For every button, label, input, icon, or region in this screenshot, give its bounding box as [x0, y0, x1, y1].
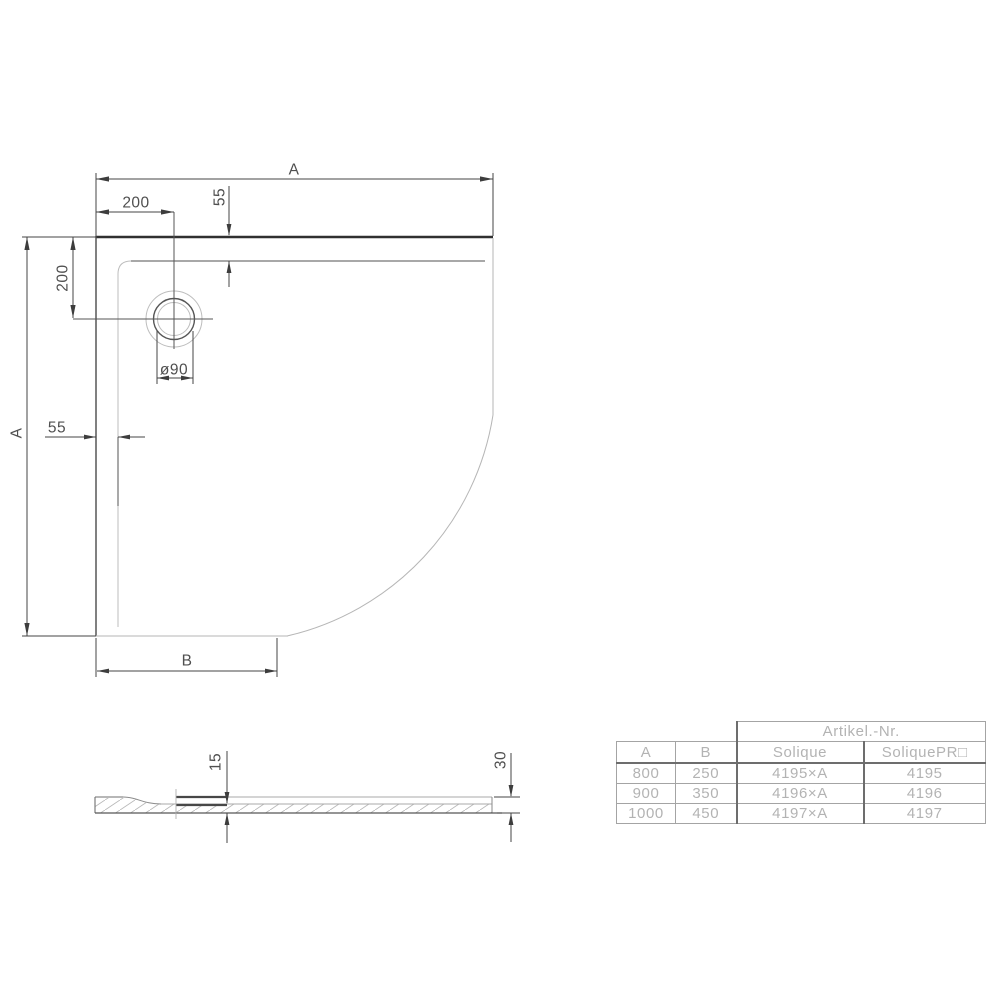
arrowhead — [118, 435, 130, 440]
section-view — [95, 789, 502, 819]
table-cell: 350 — [676, 784, 737, 804]
dim-label-200-left: 200 — [55, 264, 72, 291]
article-table-container: Artikel.-Nr. A B Solique SoliquePR□ 800 … — [616, 721, 986, 824]
dim-label-30: 30 — [493, 751, 510, 769]
arrowhead — [96, 176, 109, 181]
table-col-header-b: B — [676, 742, 737, 764]
table-cell: 1000 — [617, 804, 676, 824]
table-cell: 4196 — [864, 784, 986, 804]
arrowhead — [84, 435, 96, 440]
table-cell: 4196×A — [737, 784, 864, 804]
technical-drawing: A 200 55 200 A 55 ø90 B 15 30 — [0, 0, 1000, 1000]
arrowhead — [24, 237, 29, 250]
table-cell: 250 — [676, 763, 737, 784]
table-cell: 800 — [617, 763, 676, 784]
table-row: 1000 450 4197×A 4197 — [617, 804, 986, 824]
table-cell: 4195 — [864, 763, 986, 784]
top-view — [73, 212, 493, 636]
arrowhead — [70, 237, 75, 250]
arrowheads-top-view — [24, 176, 493, 673]
drain — [73, 212, 213, 349]
table-cell: 4195×A — [737, 763, 864, 784]
arrowhead — [227, 224, 232, 236]
table-col-header-a: A — [617, 742, 676, 764]
arrowhead — [97, 669, 109, 674]
table-row: 800 250 4195×A 4195 — [617, 763, 986, 784]
dim-label-drain-diameter: ø90 — [160, 362, 188, 379]
section-hatching — [95, 798, 492, 813]
arrowhead — [265, 669, 277, 674]
table-cell: 4197 — [864, 804, 986, 824]
dim-label-55-top: 55 — [212, 188, 229, 206]
arrowhead — [70, 305, 75, 318]
table-col-header-soliquepro: SoliquePR□ — [864, 742, 986, 764]
table-blank-cell — [617, 722, 737, 742]
table-col-header-solique: Solique — [737, 742, 864, 764]
table-cell: 450 — [676, 804, 737, 824]
arrowhead — [96, 209, 109, 214]
dim-label-a-top: A — [289, 162, 300, 179]
dim-label-b-bottom: B — [182, 653, 193, 670]
inner-rim-corner — [118, 261, 131, 274]
drawing-canvas: A 200 55 200 A 55 ø90 B 15 30 Artikel.-N… — [0, 0, 1000, 1000]
arrowhead — [227, 261, 232, 273]
arrowhead — [24, 623, 29, 636]
table-cell: 900 — [617, 784, 676, 804]
dim-label-a-left: A — [9, 427, 26, 438]
arrowhead — [161, 209, 174, 214]
table-group-header: Artikel.-Nr. — [737, 722, 986, 742]
dimension-lines-top-view — [22, 173, 493, 677]
dim-label-55-left: 55 — [48, 420, 66, 437]
arrowhead — [509, 785, 514, 797]
table-cell: 4197×A — [737, 804, 864, 824]
tray-corner-arc — [287, 415, 493, 636]
dim-label-200-top: 200 — [122, 195, 149, 212]
arrowhead — [225, 813, 230, 825]
table-row: 900 350 4196×A 4196 — [617, 784, 986, 804]
dimension-labels: A 200 55 200 A 55 ø90 B 15 30 — [9, 162, 510, 772]
article-table: Artikel.-Nr. A B Solique SoliquePR□ 800 … — [616, 721, 986, 824]
arrowhead — [480, 176, 493, 181]
arrowhead — [509, 813, 514, 825]
dim-label-15: 15 — [208, 753, 225, 771]
